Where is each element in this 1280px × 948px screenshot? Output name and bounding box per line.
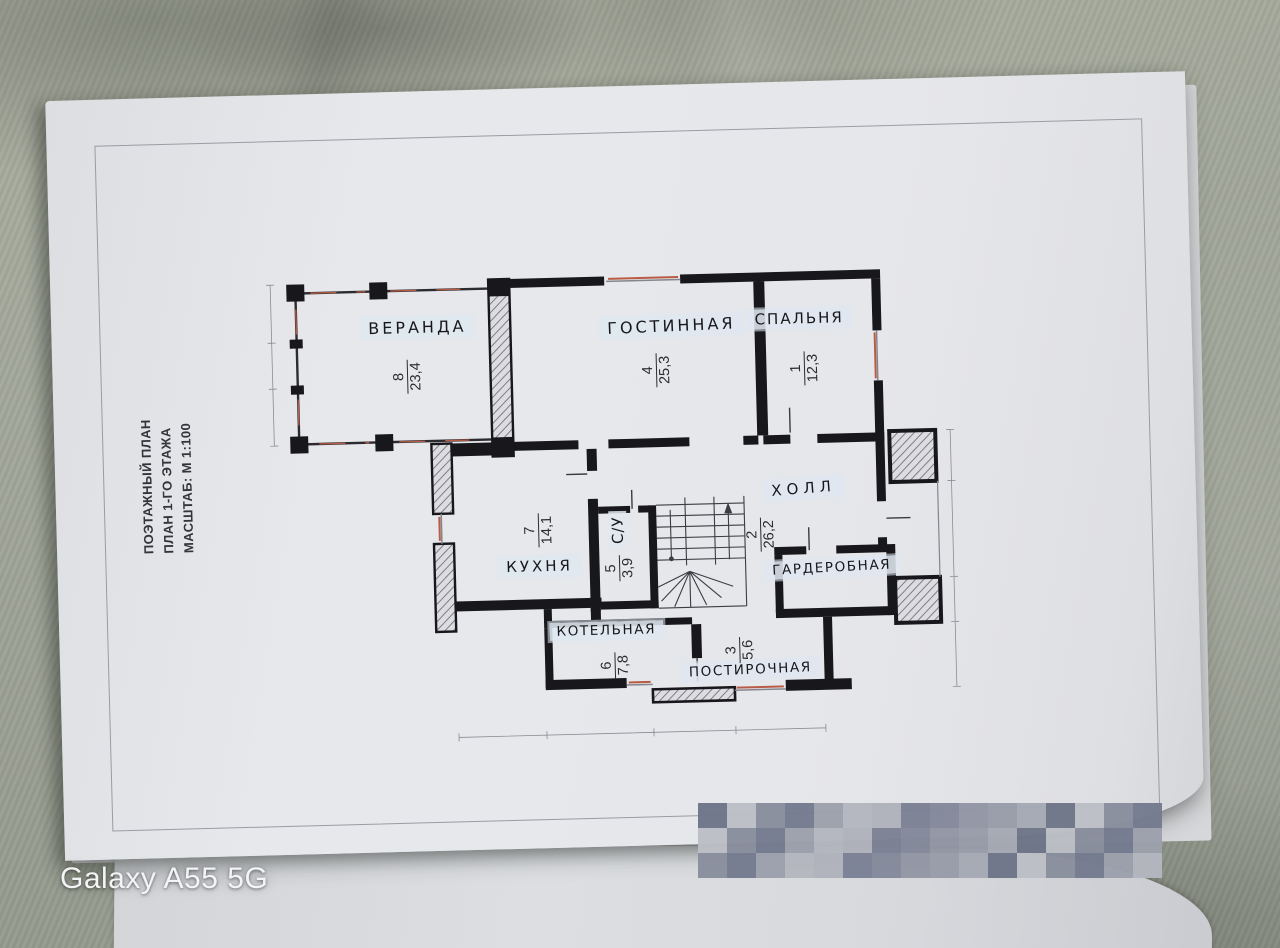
floor-plan-sheet: ПОЭТАЖНЫЙ ПЛАН ПЛАН 1-ГО ЭТАЖА МАСШТАБ: …	[45, 71, 1205, 861]
camera-watermark: Galaxy A55 5G	[60, 862, 268, 896]
title-line-3: МАСШТАБ: М 1:100	[176, 418, 200, 553]
room-area-bathroom: 5 3,9	[603, 555, 637, 582]
room-area-living: 4 25,3	[640, 353, 674, 388]
room-area-veranda: 8 23,4	[391, 359, 425, 394]
room-label-boiler: КОТЕЛЬНАЯ	[549, 620, 663, 641]
room-area-hall: 2 26,2	[744, 517, 778, 552]
room-area-kitchen: 7 14,1	[522, 513, 556, 548]
censor-mosaic	[698, 803, 1162, 878]
room-area-bedroom: 1 12,3	[788, 351, 822, 386]
title-line-2: ПЛАН 1-ГО ЭТАЖА	[156, 418, 180, 553]
title-line-1: ПОЭТАЖНЫЙ ПЛАН	[135, 419, 159, 554]
room-label-veranda: ВЕРАНДА	[361, 315, 474, 339]
floor-plan-drawing	[230, 262, 974, 826]
room-area-laundry: 3 5,6	[723, 637, 757, 664]
room-label-kitchen: КУХНЯ	[499, 555, 580, 577]
photo-scene: ПОЭТАЖНЫЙ ПЛАН ПЛАН 1-ГО ЭТАЖА МАСШТАБ: …	[0, 0, 1280, 948]
veranda-structure	[286, 280, 492, 454]
room-area-boiler: 6 7,8	[598, 652, 632, 679]
room-label-bedroom: СПАЛЬНЯ	[747, 307, 851, 330]
title-block: ПОЭТАЖНЫЙ ПЛАН ПЛАН 1-ГО ЭТАЖА МАСШТАБ: …	[81, 399, 253, 573]
staircase	[656, 496, 747, 608]
room-label-bathroom: С/У	[608, 511, 627, 549]
porch-columns	[889, 430, 941, 623]
